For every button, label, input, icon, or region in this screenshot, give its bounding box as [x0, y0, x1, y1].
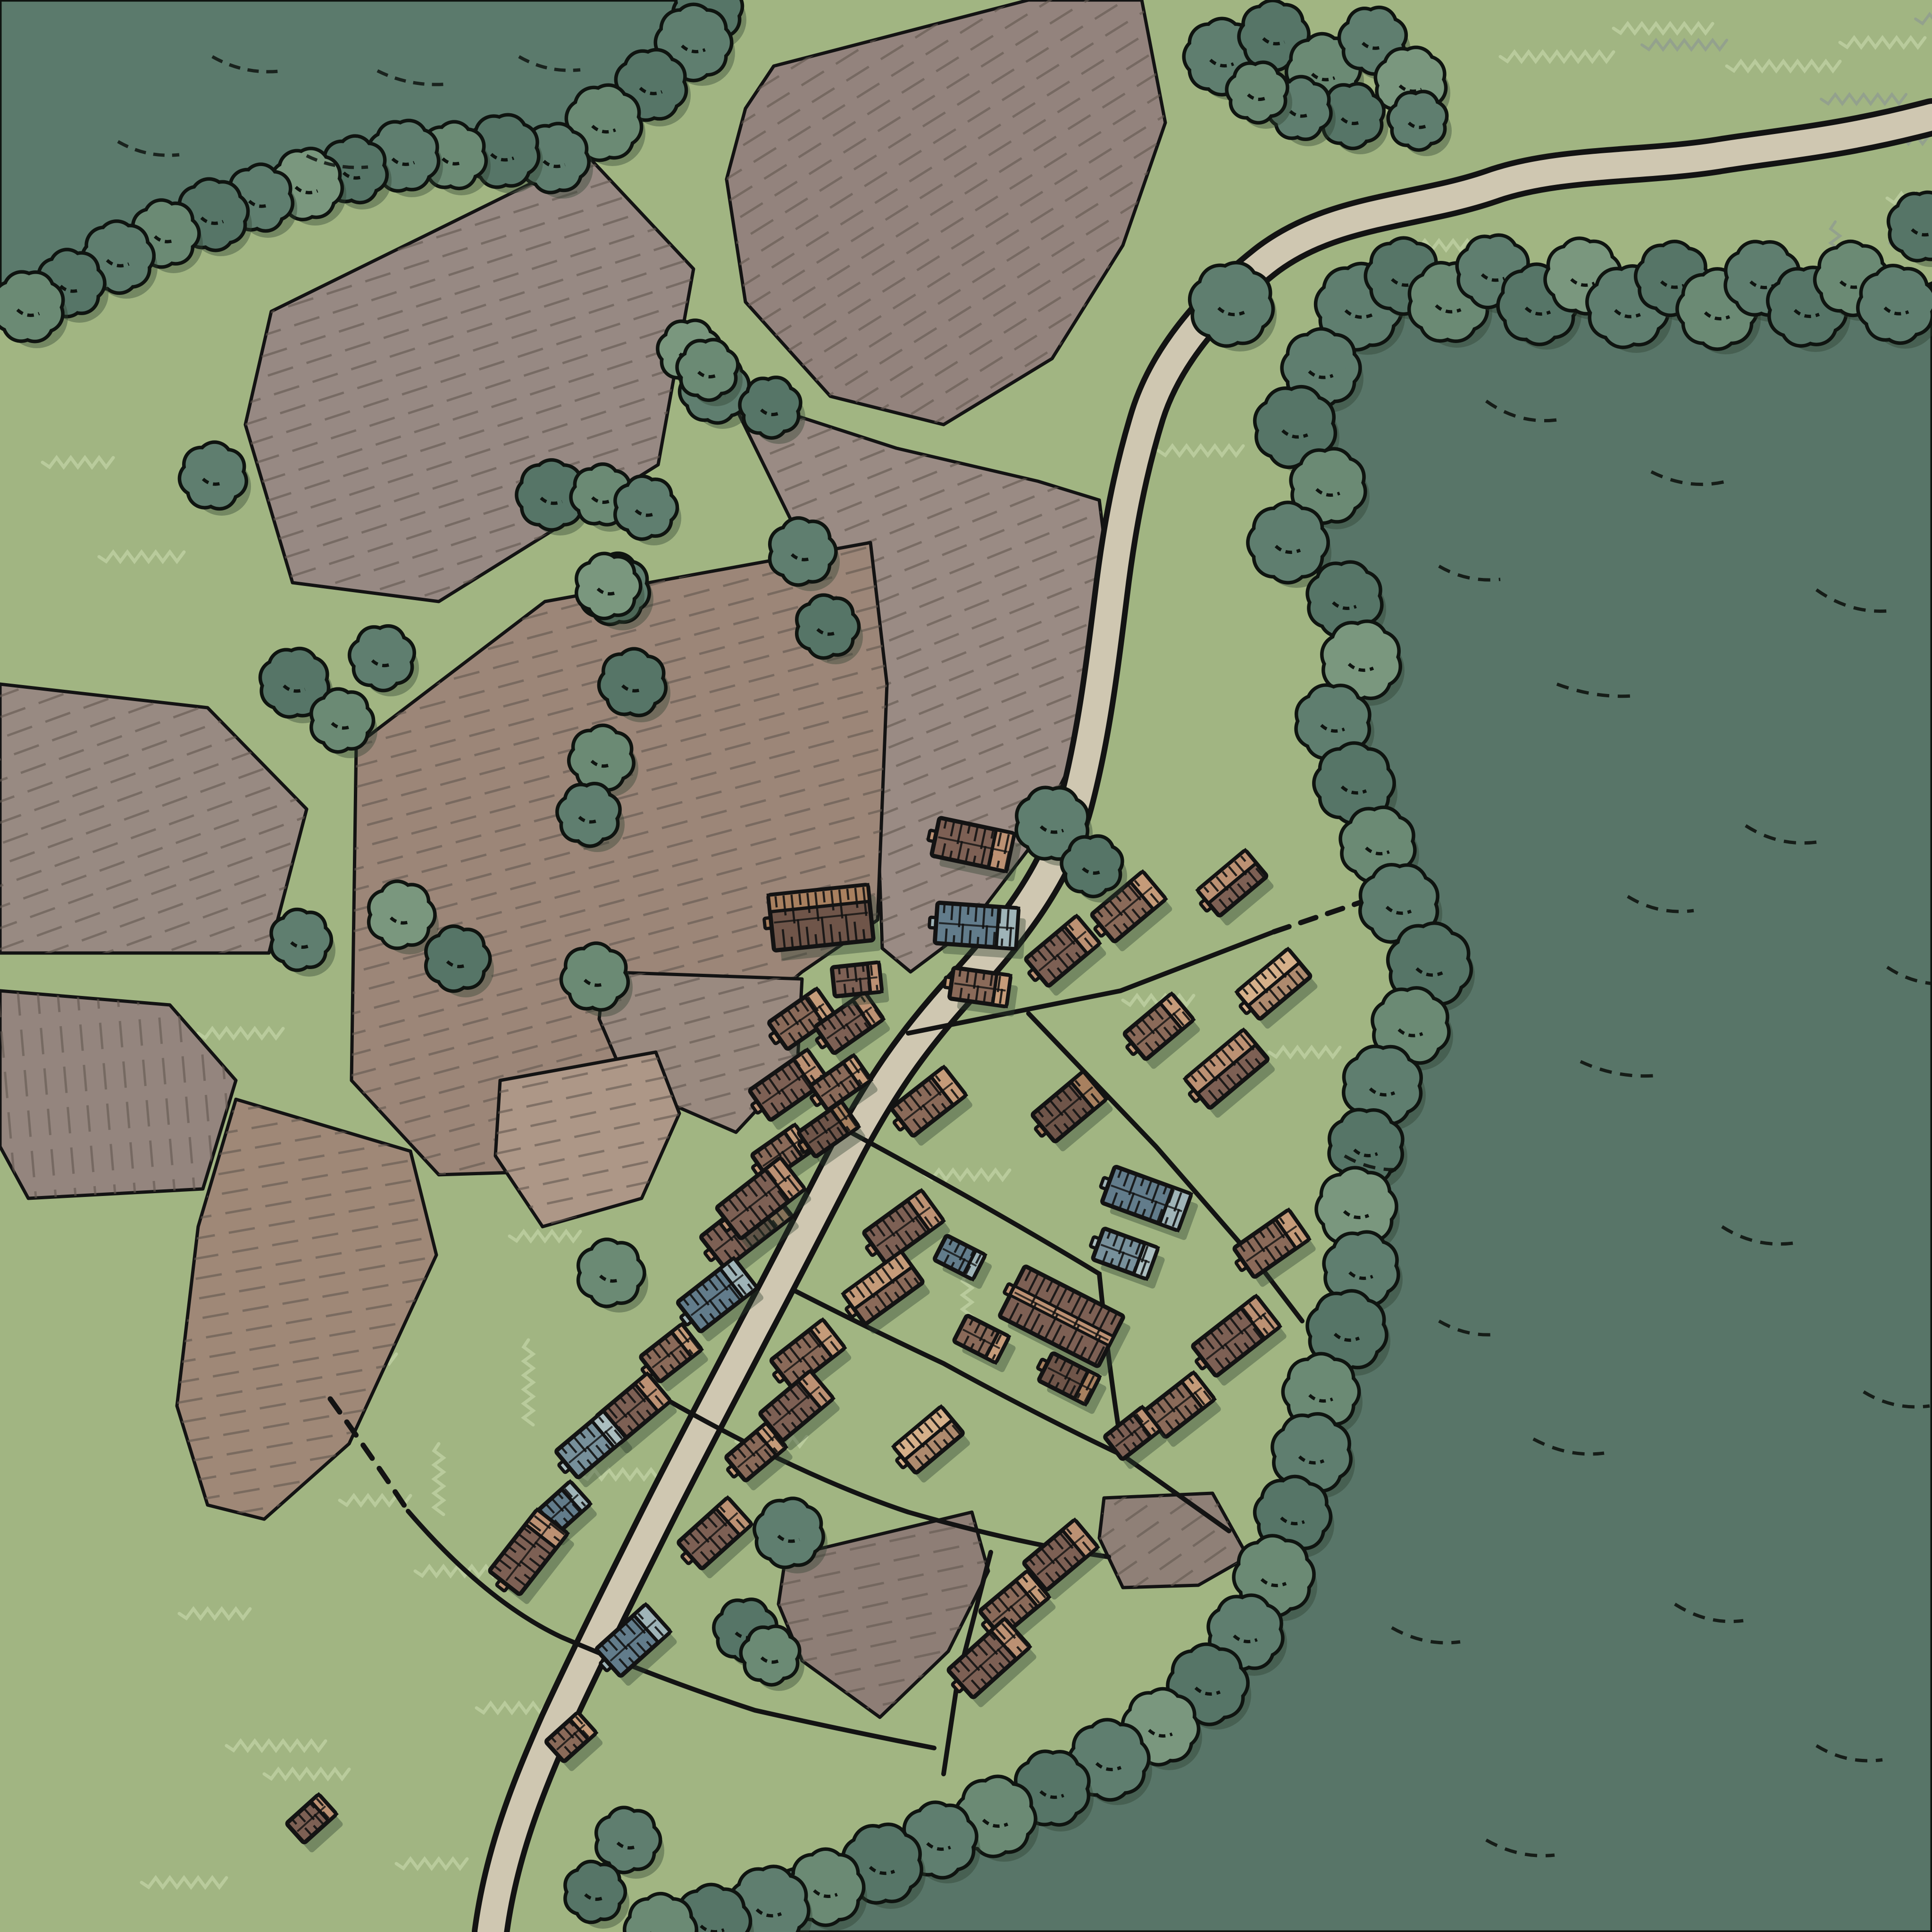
- village-map-stage: [0, 0, 1932, 1932]
- building: [761, 885, 881, 961]
- village-map: [0, 0, 1932, 1932]
- building: [928, 902, 1026, 959]
